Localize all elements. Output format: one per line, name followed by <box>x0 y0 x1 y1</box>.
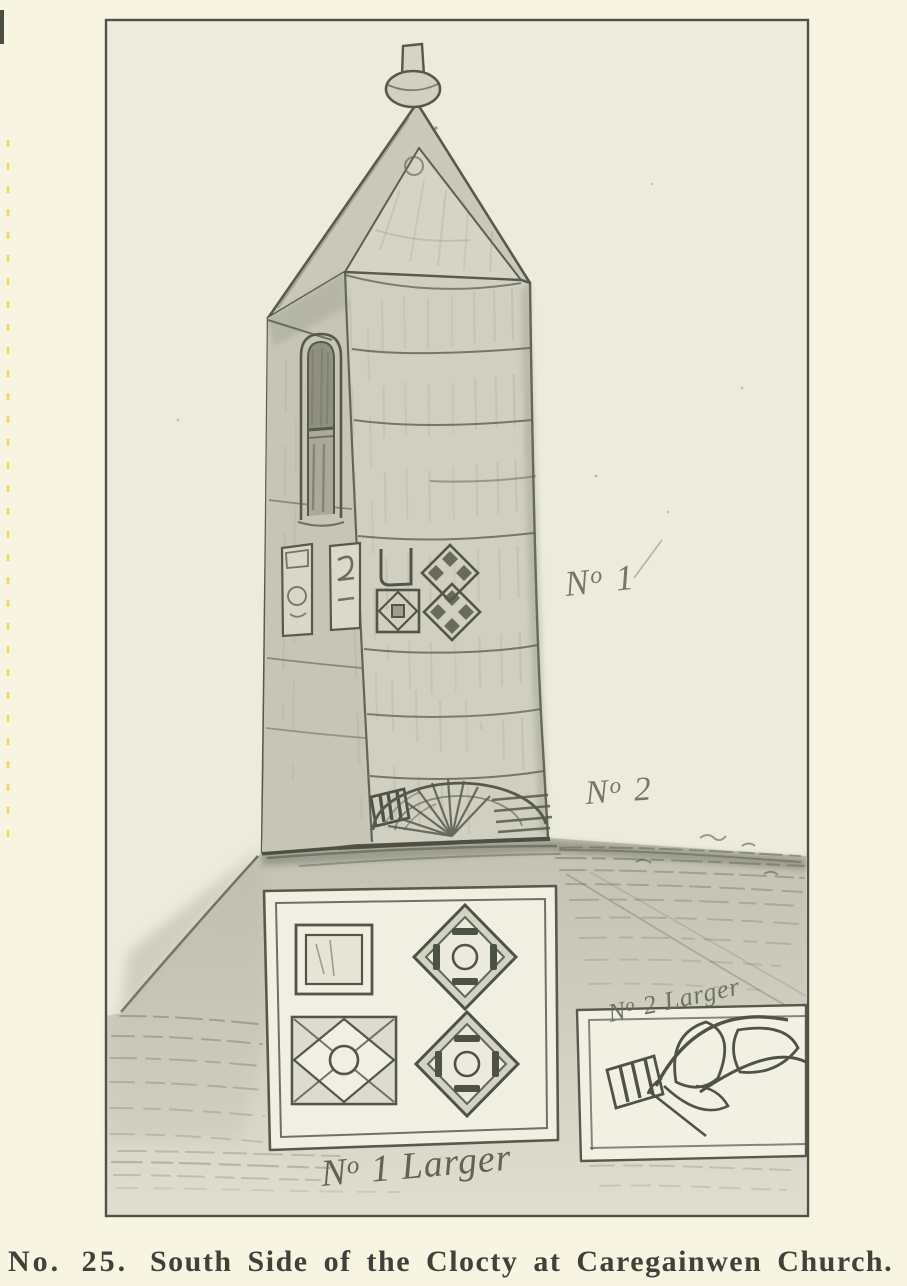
svg-text:South Side of the Clocty at Ca: South Side of the Clocty at Caregainwen … <box>150 1245 893 1278</box>
svg-text:No. 25.: No. 25. <box>8 1245 128 1278</box>
